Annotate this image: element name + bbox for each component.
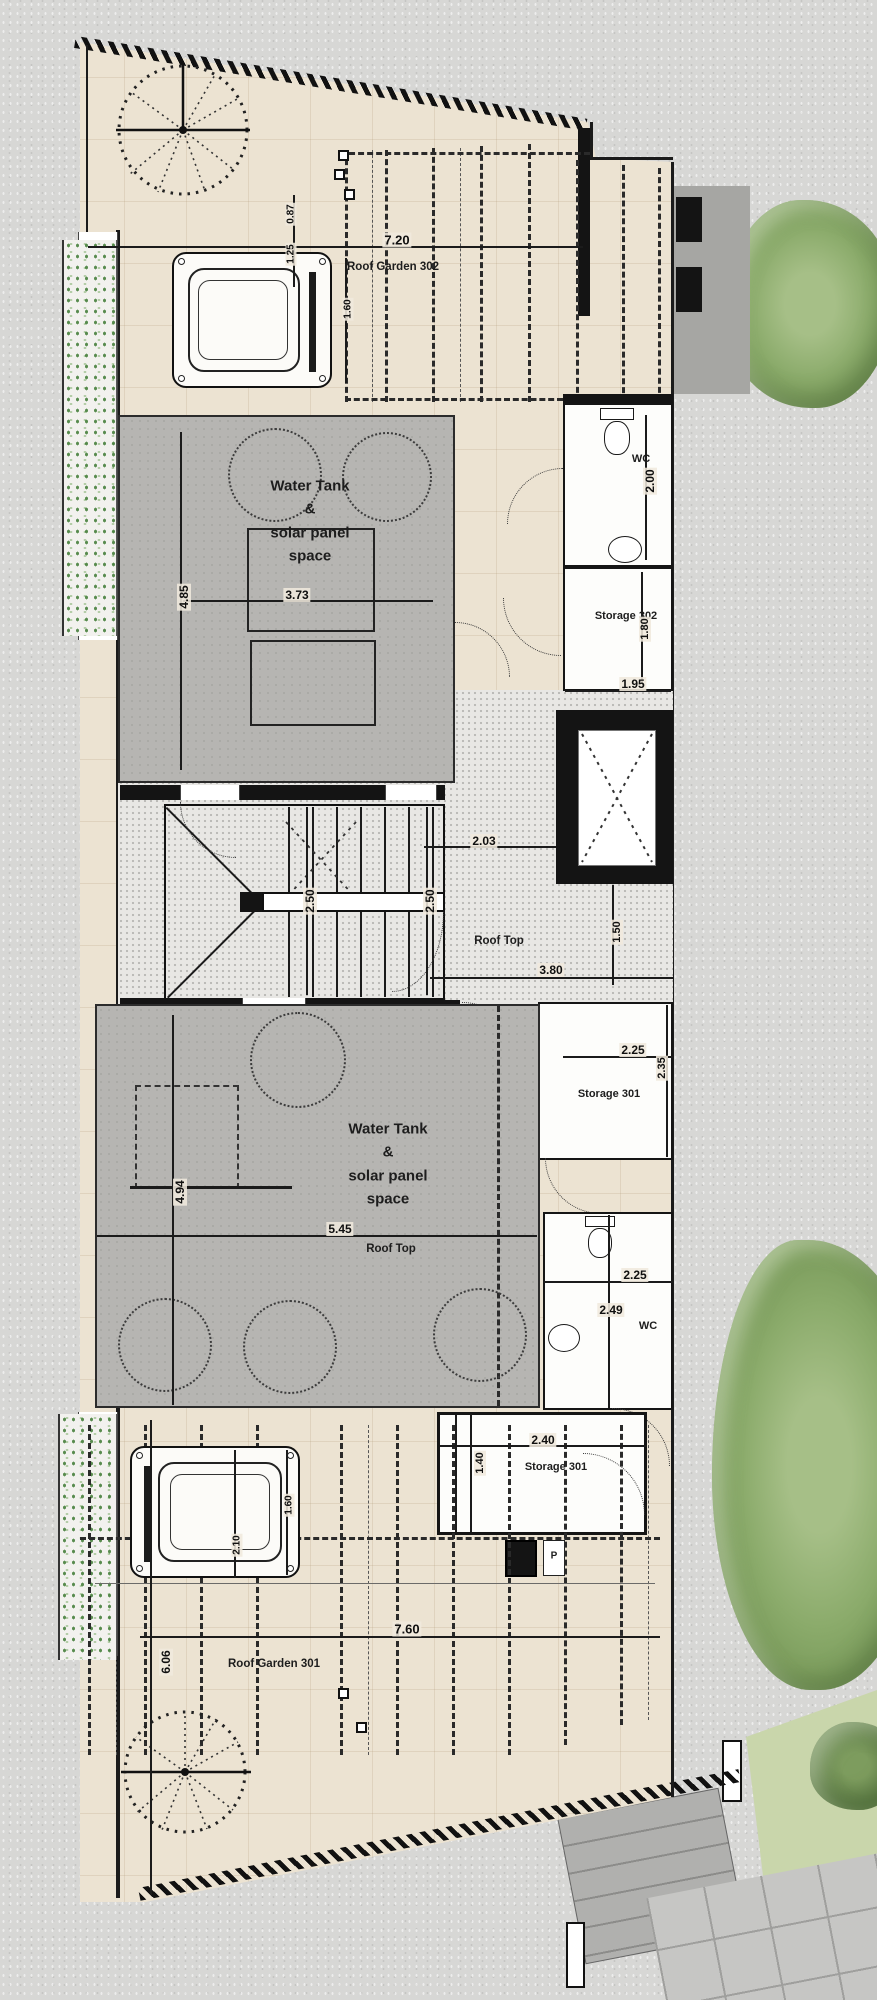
dim-line bbox=[565, 690, 671, 692]
gate-post bbox=[566, 1922, 585, 1988]
storage-301-upper-room bbox=[538, 1002, 673, 1160]
water-tank-circle bbox=[342, 432, 432, 522]
jacuzzi-icon bbox=[130, 1446, 300, 1578]
room-label-wc-301: WC bbox=[639, 1320, 657, 1332]
dim-line bbox=[97, 1235, 537, 1237]
dim-label: 3.80 bbox=[537, 963, 564, 977]
sink-icon bbox=[548, 1324, 580, 1352]
dim-label: 2.03 bbox=[470, 834, 497, 848]
spiral-staircase-icon bbox=[108, 52, 253, 202]
stair-direction-x bbox=[282, 818, 360, 902]
dim-label: 2.50 bbox=[423, 887, 437, 914]
dim-label: 4.94 bbox=[173, 1178, 187, 1205]
dim-label: 2.40 bbox=[529, 1433, 556, 1447]
dim-label: 2.25 bbox=[619, 1043, 646, 1057]
pergola-column bbox=[334, 169, 345, 180]
water-tank-circle bbox=[433, 1288, 527, 1382]
room-label-storage-301-upper: Storage 301 bbox=[578, 1088, 640, 1100]
dim-label: 1.40 bbox=[474, 1450, 486, 1475]
dim-label: 2.25 bbox=[621, 1268, 648, 1282]
toilet-icon bbox=[585, 1216, 615, 1227]
electrical-panel-label: P bbox=[551, 1551, 558, 1562]
column bbox=[676, 267, 702, 312]
spiral-staircase-icon bbox=[115, 1706, 255, 1846]
pergola-column bbox=[344, 189, 355, 200]
dim-label: 1.60 bbox=[284, 1493, 295, 1516]
toilet-icon bbox=[600, 408, 634, 420]
dim-label: 2.00 bbox=[643, 467, 657, 494]
dim-label: 1.95 bbox=[619, 677, 646, 691]
dim-extension-line bbox=[86, 45, 88, 250]
dim-label: 2.35 bbox=[656, 1055, 668, 1080]
room-label-roof-garden-302: Roof Garden 302 bbox=[347, 261, 439, 273]
water-tank-circle bbox=[250, 1012, 346, 1108]
column bbox=[676, 197, 702, 242]
room-label-roof-top-upper: Roof Top bbox=[474, 935, 524, 947]
wc-top-wall bbox=[563, 394, 673, 403]
solar-panel bbox=[250, 640, 376, 726]
dim-label: 0.87 bbox=[286, 202, 297, 225]
solar-panel-dashed bbox=[135, 1085, 239, 1189]
pergola-column bbox=[338, 150, 349, 161]
hedge bbox=[62, 240, 117, 636]
room-label-roof-top-lower: Roof Top bbox=[366, 1243, 416, 1255]
dim-label: 2.10 bbox=[232, 1533, 243, 1556]
dim-line bbox=[172, 1015, 174, 1405]
elevator-x-icon bbox=[580, 732, 654, 864]
tree-icon bbox=[712, 1240, 877, 1690]
dim-label: 1.80 bbox=[639, 616, 651, 641]
dim-label: 1.50 bbox=[611, 919, 623, 944]
room-label-water-tank-301: Water Tank & solar panel space bbox=[348, 1118, 427, 1211]
panel-edge bbox=[130, 1186, 292, 1189]
pergola-column bbox=[356, 1722, 367, 1733]
dim-label: 4.85 bbox=[177, 583, 191, 610]
dim-line bbox=[666, 1005, 668, 1157]
room-label-storage-301-lower: Storage 301 bbox=[525, 1461, 587, 1473]
storage-302-room bbox=[563, 567, 673, 691]
stair-landing-bar bbox=[262, 892, 445, 912]
dim-line bbox=[88, 246, 583, 248]
dim-label: 1.25 bbox=[286, 242, 297, 265]
dim-label: 7.60 bbox=[392, 1622, 421, 1637]
dim-line bbox=[430, 977, 673, 979]
dim-label: 7.20 bbox=[382, 233, 411, 248]
stair-landing-end bbox=[240, 892, 262, 912]
dim-line bbox=[234, 1450, 236, 1578]
water-tank-circle bbox=[243, 1300, 337, 1394]
toilet-icon bbox=[604, 421, 630, 455]
sink-icon bbox=[608, 536, 642, 563]
water-tank-circle bbox=[118, 1298, 212, 1392]
dim-line bbox=[150, 1420, 152, 1895]
dim-label: 2.50 bbox=[303, 887, 317, 914]
dim-label: 2.49 bbox=[597, 1303, 624, 1317]
room-label-roof-garden-301: Roof Garden 301 bbox=[228, 1658, 320, 1670]
dim-label: 1.60 bbox=[343, 297, 354, 320]
dim-label: 6.06 bbox=[159, 1648, 173, 1675]
room-label-wc-302: WC bbox=[632, 453, 650, 465]
jacuzzi-icon bbox=[172, 252, 332, 388]
floor-plan-canvas: 7.20 0.87 1.25 1.60 4.85 3.73 2.00 1.80 … bbox=[0, 0, 877, 2000]
dim-line bbox=[470, 1414, 472, 1532]
dim-label: 5.45 bbox=[326, 1222, 353, 1236]
pergola-column bbox=[338, 1688, 349, 1699]
room-label-water-tank-302: Water Tank & solar panel space bbox=[270, 475, 349, 568]
dim-label: 3.73 bbox=[283, 588, 310, 602]
